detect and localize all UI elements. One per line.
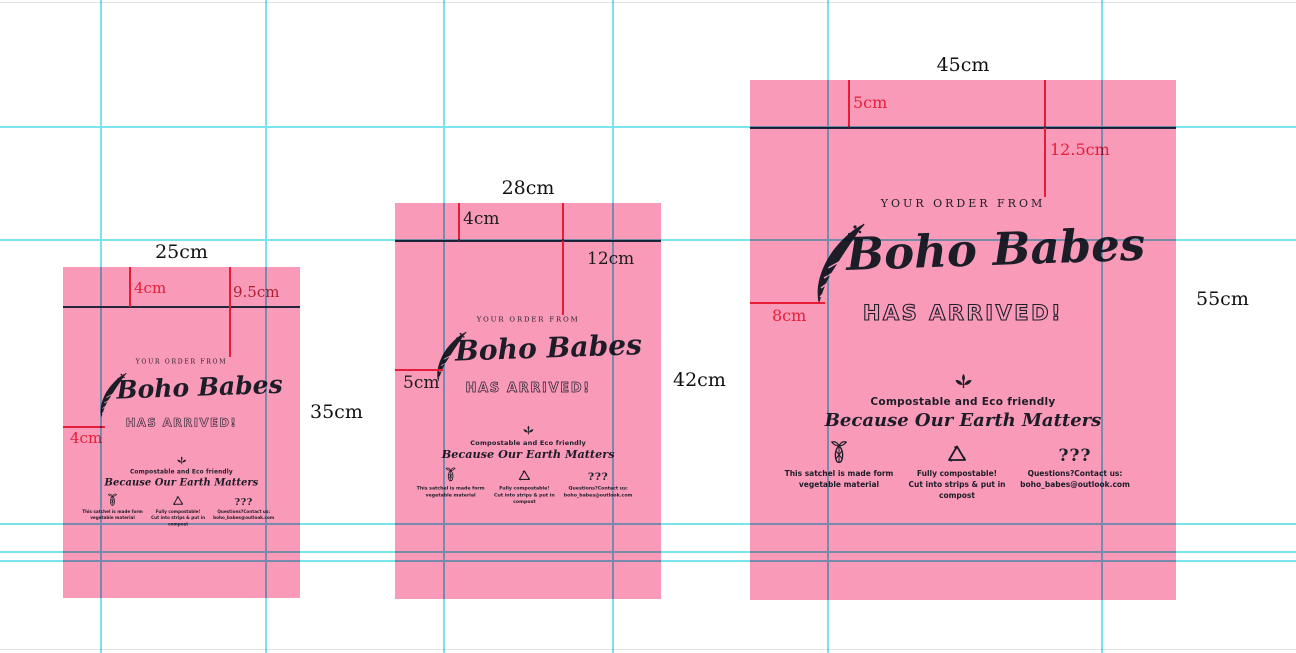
canvas-bottom-edge bbox=[0, 649, 1296, 650]
questions-icon: ??? bbox=[1059, 446, 1092, 466]
questions-icon: ??? bbox=[588, 471, 609, 484]
canvas-top-edge bbox=[0, 2, 1296, 3]
arrived-text: HAS ARRIVED! bbox=[750, 301, 1176, 325]
flap-depth-tick bbox=[848, 80, 850, 128]
mailer-bag-large: YOUR ORDER FROM Boho Babes HAS ARRIVED! … bbox=[750, 80, 1176, 600]
flap-depth-label: 4cm bbox=[463, 209, 499, 229]
seal-depth-tick bbox=[562, 203, 564, 315]
info-col-material: This satchel is made form vegetable mate… bbox=[780, 439, 898, 502]
bottom-gusset-label: 5cm bbox=[403, 373, 439, 393]
brand-script: Boho Babes bbox=[116, 370, 278, 405]
seal-depth-label: 9.5cm bbox=[233, 283, 279, 301]
bag-artwork: YOUR ORDER FROM Boho Babes HAS ARRIVED! … bbox=[750, 197, 1176, 497]
info-col-questions: ??? Questions?Contact us: boho_babes@out… bbox=[561, 466, 635, 505]
seal-depth-label: 12cm bbox=[587, 249, 634, 269]
bottom-gusset-label: 8cm bbox=[772, 306, 806, 325]
flap-fold-line bbox=[395, 240, 661, 242]
flap-fold-line bbox=[750, 127, 1176, 129]
info-row: This satchel is made form vegetable mate… bbox=[63, 493, 300, 528]
info-col-compost: Fully compostable! Cut into strips & put… bbox=[898, 439, 1016, 502]
width-dimension-label: 45cm bbox=[750, 54, 1176, 76]
bag-artwork: YOUR ORDER FROM Boho Babes HAS ARRIVED! … bbox=[395, 315, 661, 503]
info-caption: This satchel is made form vegetable mate… bbox=[780, 469, 898, 491]
design-canvas: YOUR ORDER FROM Boho Babes HAS ARRIVED! … bbox=[0, 0, 1296, 653]
info-caption: Fully compostable! Cut into strips & put… bbox=[898, 469, 1016, 502]
recycle-icon bbox=[944, 443, 970, 466]
info-col-questions: ??? Questions?Contact us: boho_babes@out… bbox=[1016, 439, 1134, 502]
sprout-icon bbox=[953, 373, 974, 390]
sprout-icon bbox=[522, 425, 535, 436]
info-caption: This satchel is made form vegetable mate… bbox=[414, 485, 488, 499]
height-dimension-label: 55cm bbox=[1196, 288, 1249, 310]
width-dimension-label: 28cm bbox=[395, 177, 661, 199]
height-dimension-label: 42cm bbox=[673, 369, 726, 391]
seal-depth-tick bbox=[229, 267, 231, 357]
info-col-compost: Fully compostable! Cut into strips & put… bbox=[488, 466, 562, 505]
eco-section: Compostable and Eco friendly Because Our… bbox=[395, 425, 661, 505]
corn-icon bbox=[444, 467, 457, 483]
recycle-icon bbox=[171, 495, 185, 508]
seal-depth-tick bbox=[1044, 80, 1046, 197]
flap-depth-label: 5cm bbox=[853, 93, 887, 112]
flap-depth-tick bbox=[458, 203, 460, 241]
info-col-compost: Fully compostable! Cut into strips & put… bbox=[145, 493, 211, 528]
order-from-text: YOUR ORDER FROM bbox=[63, 358, 300, 365]
eco-heading: Compostable and Eco friendly bbox=[750, 396, 1176, 408]
info-caption: Fully compostable! Cut into strips & put… bbox=[145, 509, 211, 527]
corn-icon bbox=[107, 493, 118, 507]
brand-script: Boho Babes bbox=[845, 218, 1137, 281]
info-caption: Fully compostable! Cut into strips & put… bbox=[488, 485, 562, 505]
info-col-questions: ??? Questions?Contact us: boho_babes@out… bbox=[211, 493, 277, 528]
eco-tagline: Because Our Earth Matters bbox=[750, 410, 1176, 431]
sprout-icon bbox=[176, 456, 188, 465]
seal-depth-label: 12.5cm bbox=[1050, 140, 1110, 159]
flap-depth-tick bbox=[129, 267, 131, 307]
flap-depth-label: 4cm bbox=[134, 279, 166, 297]
brand-script: Boho Babes bbox=[454, 328, 636, 367]
info-caption: Questions?Contact us: boho_babes@outlook… bbox=[561, 485, 635, 499]
height-dimension-label: 35cm bbox=[310, 401, 363, 423]
order-from-text: YOUR ORDER FROM bbox=[750, 197, 1176, 210]
eco-tagline: Because Our Earth Matters bbox=[395, 448, 661, 461]
width-dimension-label: 25cm bbox=[63, 241, 300, 263]
eco-heading: Compostable and Eco friendly bbox=[63, 469, 300, 476]
bottom-gusset-tick bbox=[63, 426, 105, 428]
info-col-material: This satchel is made form vegetable mate… bbox=[80, 493, 146, 528]
bottom-gusset-tick bbox=[750, 302, 825, 304]
info-caption: Questions?Contact us: boho_babes@outlook… bbox=[211, 509, 277, 521]
order-from-text: YOUR ORDER FROM bbox=[395, 315, 661, 323]
eco-heading: Compostable and Eco friendly bbox=[395, 439, 661, 447]
flap-fold-line bbox=[63, 306, 300, 308]
eco-section: Compostable and Eco friendly Because Our… bbox=[750, 373, 1176, 502]
questions-icon: ??? bbox=[235, 496, 253, 507]
info-row: This satchel is made form vegetable mate… bbox=[750, 439, 1176, 502]
mailer-bag-small: YOUR ORDER FROM Boho Babes HAS ARRIVED! … bbox=[63, 267, 300, 598]
bottom-gusset-label: 4cm bbox=[70, 429, 102, 447]
bottom-gusset-tick bbox=[395, 369, 443, 371]
recycle-icon bbox=[516, 469, 532, 483]
info-col-material: This satchel is made form vegetable mate… bbox=[414, 466, 488, 505]
info-caption: This satchel is made form vegetable mate… bbox=[80, 509, 146, 521]
eco-section: Compostable and Eco friendly Because Our… bbox=[63, 456, 300, 528]
eco-tagline: Because Our Earth Matters bbox=[63, 476, 300, 488]
info-row: This satchel is made form vegetable mate… bbox=[395, 466, 661, 505]
info-caption: Questions?Contact us: boho_babes@outlook… bbox=[1016, 469, 1134, 491]
corn-icon bbox=[829, 440, 849, 466]
mailer-bag-medium: YOUR ORDER FROM Boho Babes HAS ARRIVED! … bbox=[395, 203, 661, 599]
